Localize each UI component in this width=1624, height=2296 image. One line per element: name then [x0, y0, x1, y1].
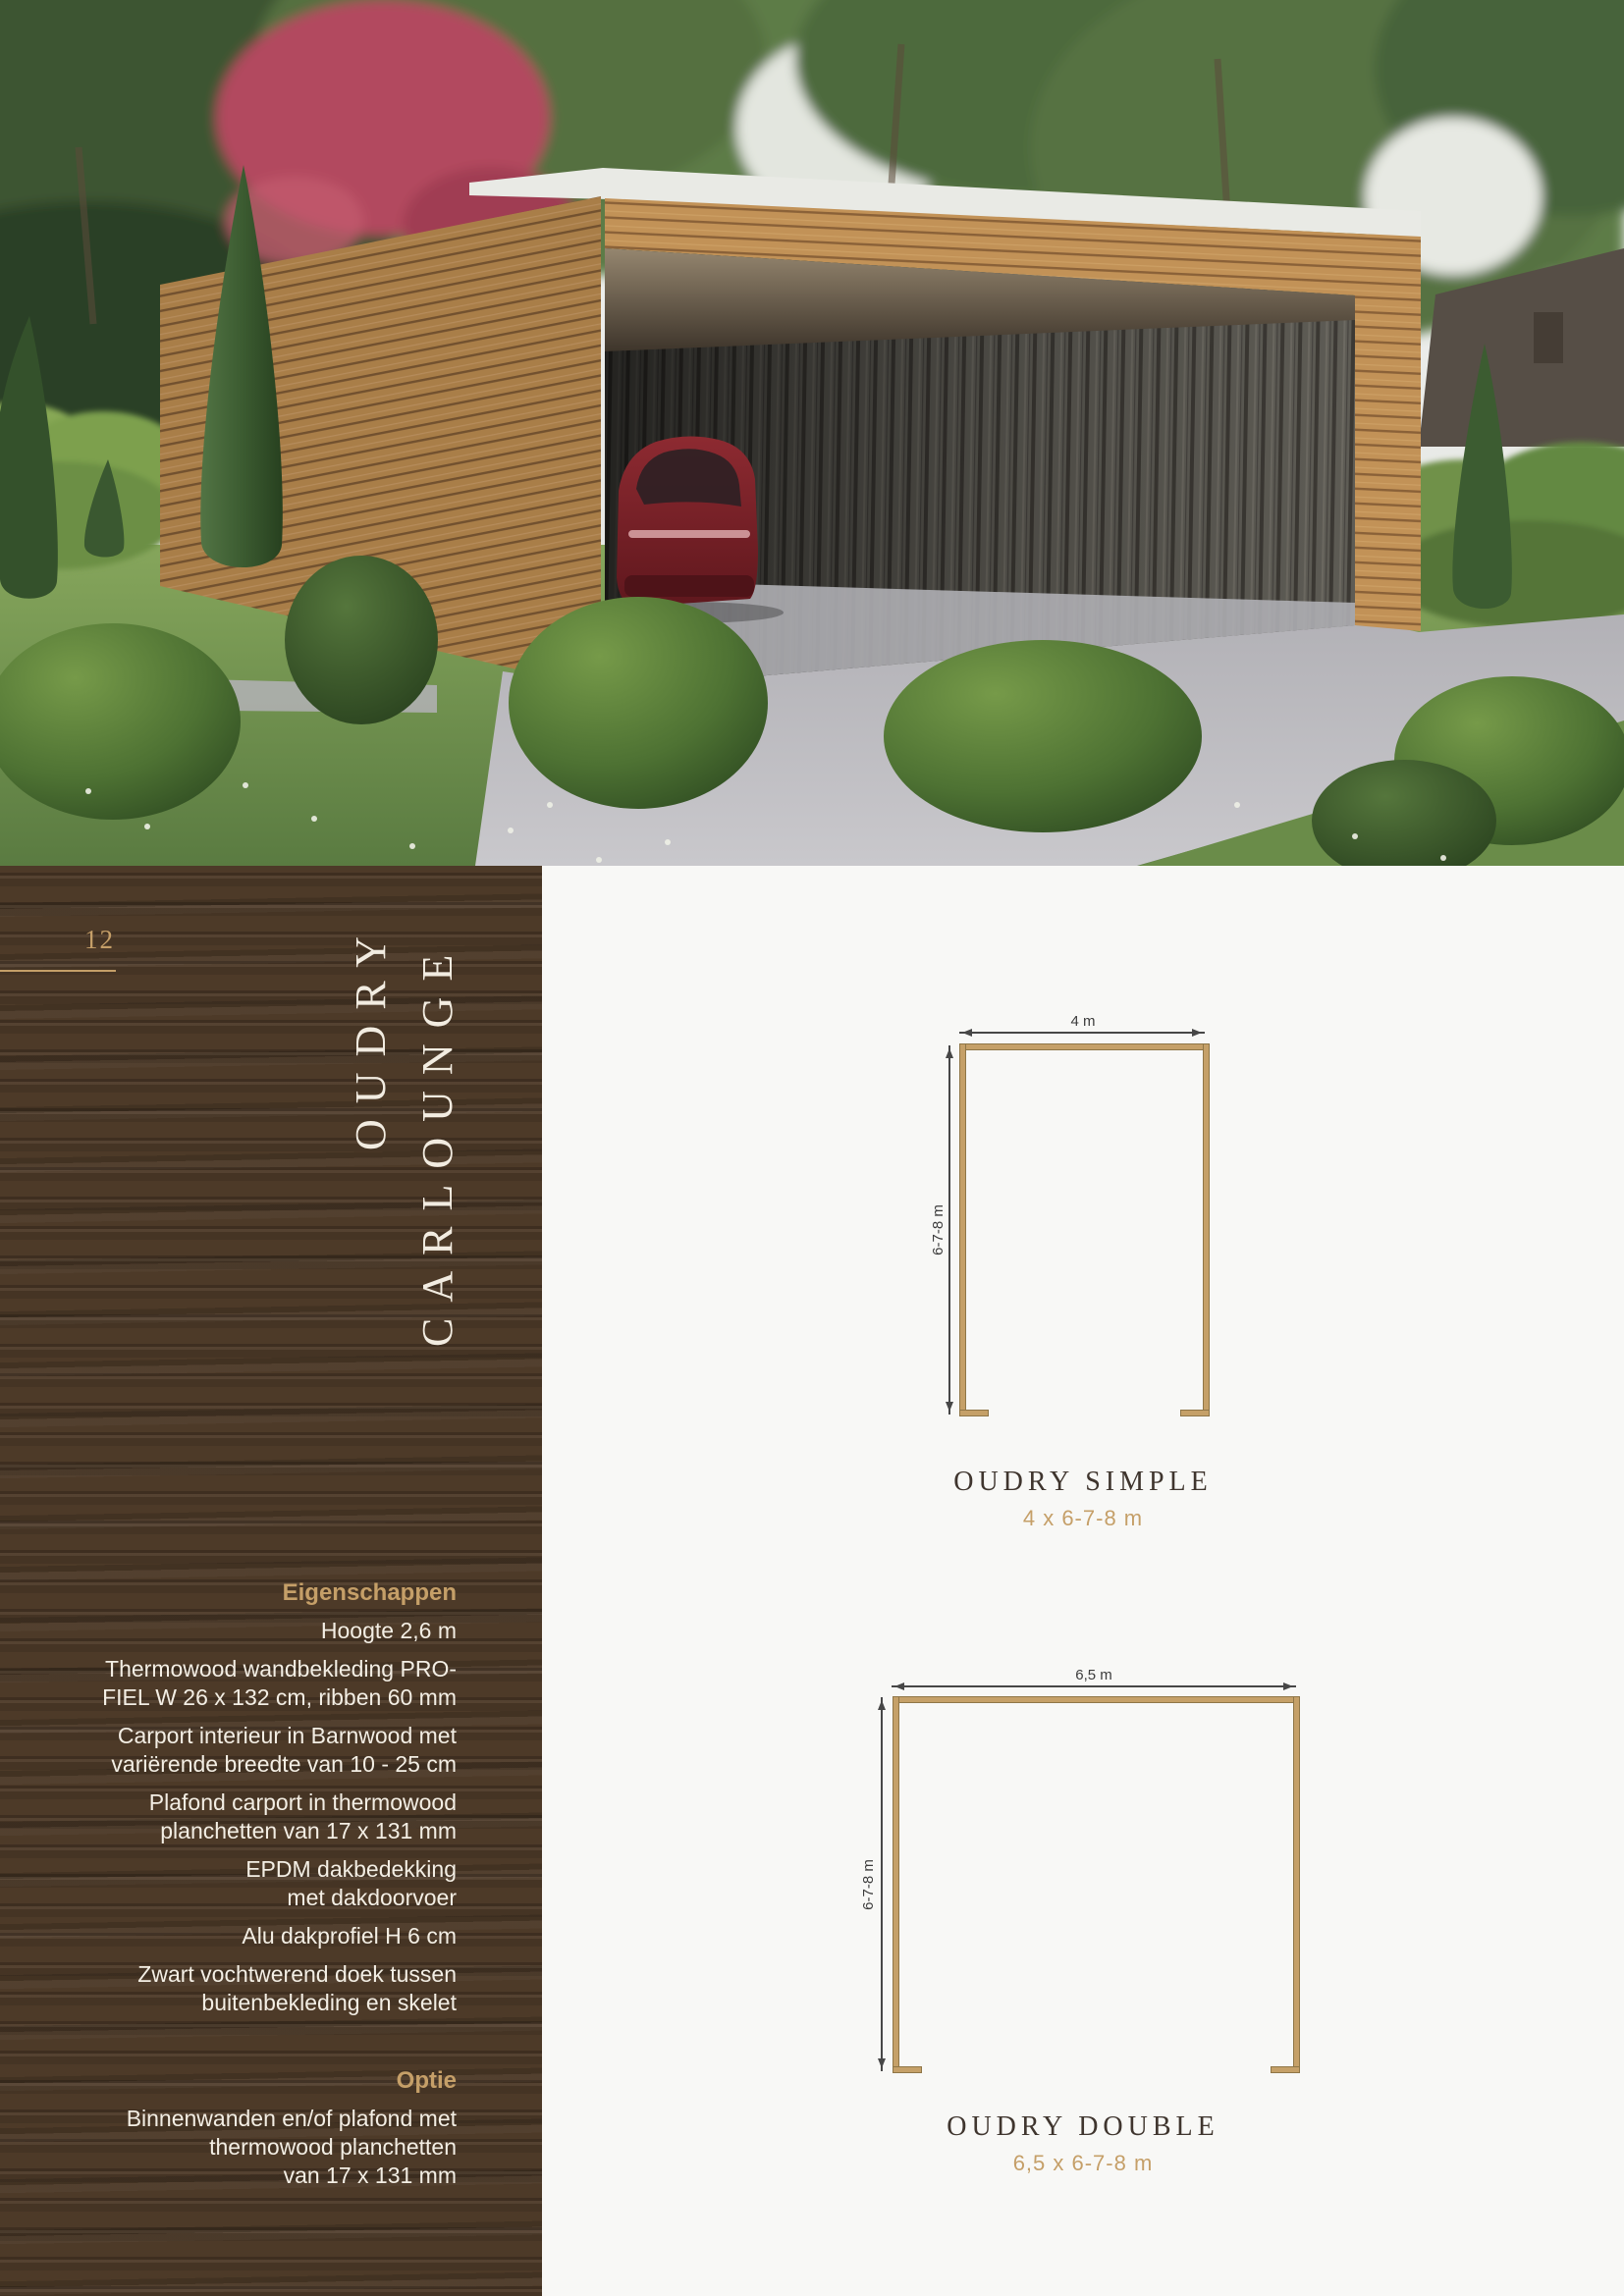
- plan-foot-left: [959, 1410, 989, 1416]
- simple-depth-dimension-arrow: [948, 1045, 950, 1415]
- plan-foot-right: [1180, 1410, 1210, 1416]
- diagram-subtitle-simple: 4 x 6-7-8 m: [936, 1506, 1230, 1531]
- brand-title-line1: OUDRY: [350, 921, 393, 1150]
- floor-plan-double: [893, 1696, 1300, 2073]
- option-heading: Optie: [83, 2066, 457, 2095]
- carport-photo-illustration: [0, 0, 1624, 866]
- floor-plan-simple: [959, 1043, 1210, 1416]
- double-width-label: 6,5 m: [1035, 1667, 1153, 1683]
- plan-foot-left: [893, 2066, 922, 2073]
- plan-wall-top: [959, 1043, 1210, 1050]
- page-number-rule: [0, 970, 116, 972]
- double-depth-label: 6-7-8 m: [860, 1841, 878, 1929]
- brand-title-line2: CARLOUNGE: [416, 939, 460, 1347]
- diagram-title-double: OUDRY DOUBLE: [936, 2111, 1230, 2143]
- option-text: Binnenwanden en/of plafond met thermowoo…: [83, 2105, 457, 2190]
- spec-item: Plafond carport in thermowood planchette…: [83, 1789, 457, 1845]
- simple-width-label: 4 m: [1024, 1013, 1142, 1030]
- hero-photo: [0, 0, 1624, 866]
- double-depth-dimension-arrow: [881, 1697, 883, 2071]
- plan-foot-right: [1271, 2066, 1300, 2073]
- simple-width-dimension-arrow: [959, 1032, 1205, 1034]
- plan-wall-right: [1203, 1043, 1210, 1416]
- page-number: 12: [0, 925, 115, 955]
- spec-item: Alu dakprofiel H 6 cm: [83, 1922, 457, 1950]
- specs-heading: Eigenschappen: [83, 1578, 457, 1607]
- spec-item: Hoogte 2,6 m: [83, 1617, 457, 1645]
- double-width-dimension-arrow: [892, 1685, 1296, 1687]
- catalog-page: 12 OUDRY CARLOUNGE Eigenschappen Hoogte …: [0, 0, 1624, 2296]
- catalog-content: 4 m 6-7-8 m OUDRY SIMPLE 4 x 6-7-8 m 6,5…: [542, 866, 1624, 2296]
- specs-block: Eigenschappen Hoogte 2,6 m Thermowood wa…: [83, 1578, 457, 2200]
- plan-wall-right: [1293, 1696, 1300, 2073]
- spec-item: EPDM dakbedekking met dakdoorvoer: [83, 1855, 457, 1912]
- sidebar-panel: 12 OUDRY CARLOUNGE Eigenschappen Hoogte …: [0, 866, 542, 2296]
- simple-depth-label: 6-7-8 m: [930, 1186, 947, 1274]
- plan-wall-left: [893, 1696, 899, 2073]
- diagram-title-simple: OUDRY SIMPLE: [936, 1467, 1230, 1498]
- diagram-subtitle-double: 6,5 x 6-7-8 m: [936, 2151, 1230, 2176]
- spec-item: Zwart vochtwerend doek tussen buitenbekl…: [83, 1960, 457, 2017]
- spec-item: Carport interieur in Barnwood met variër…: [83, 1722, 457, 1779]
- spec-item: Thermowood wandbekleding PRO- FIEL W 26 …: [83, 1655, 457, 1712]
- plan-wall-left: [959, 1043, 966, 1416]
- plan-wall-top: [893, 1696, 1300, 1703]
